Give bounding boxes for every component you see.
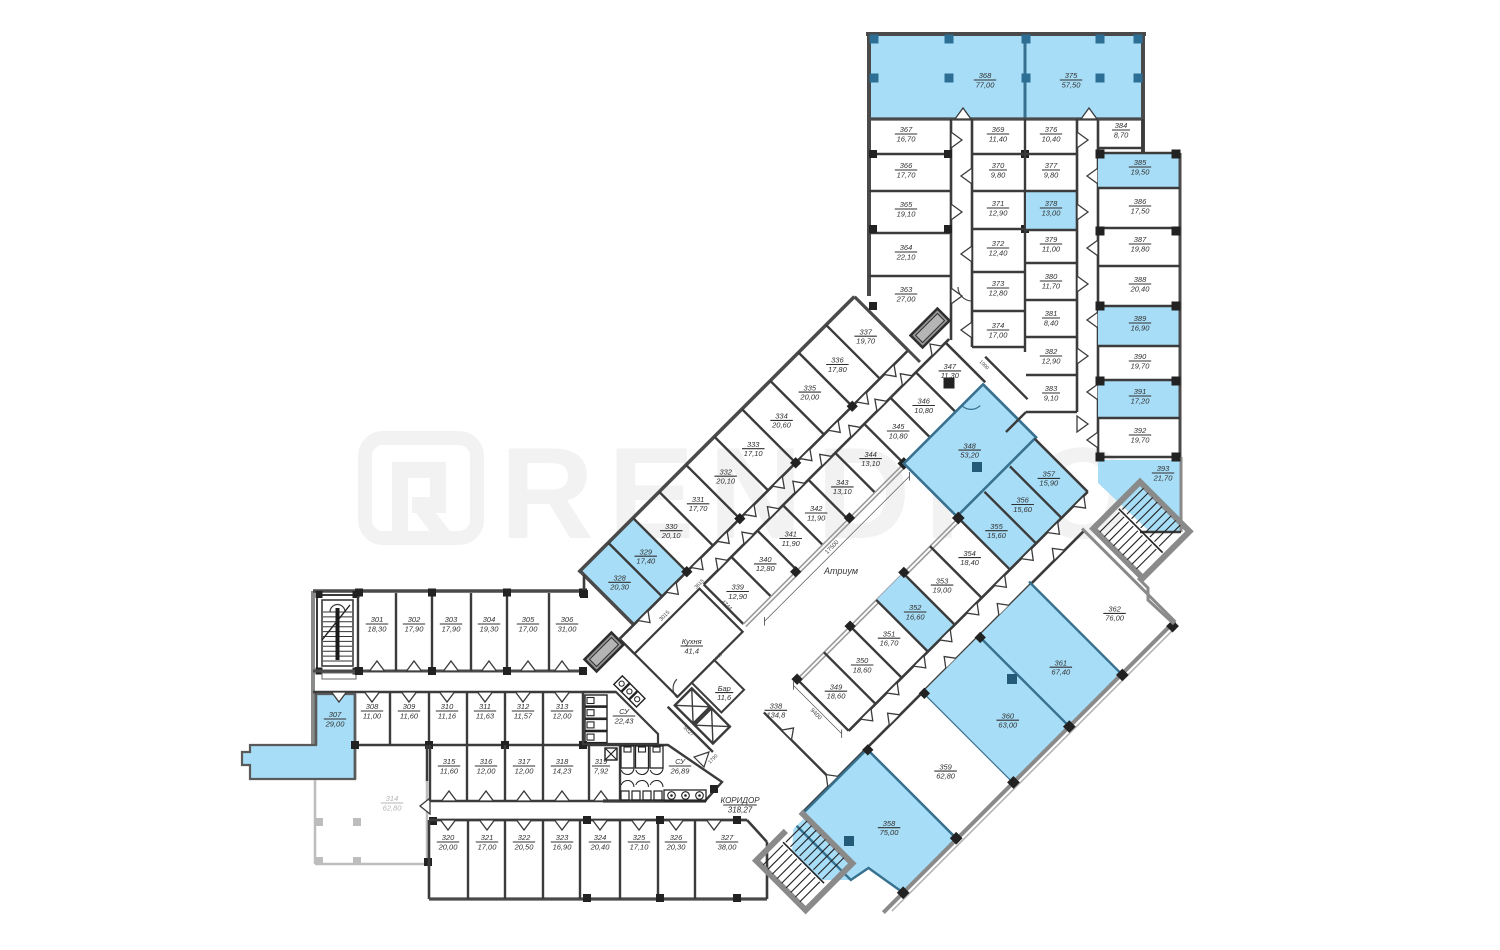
svg-text:327: 327 [721,833,734,842]
svg-text:17,00: 17,00 [519,624,539,633]
svg-text:12,80: 12,80 [989,288,1009,297]
svg-text:11,16: 11,16 [438,711,457,720]
svg-text:340: 340 [759,555,772,564]
svg-text:16,70: 16,70 [897,134,917,143]
svg-text:62,80: 62,80 [383,803,403,812]
svg-text:360: 360 [1002,711,1015,720]
svg-text:11,00: 11,00 [1042,244,1061,253]
svg-text:16,90: 16,90 [1131,323,1151,332]
svg-text:369: 369 [992,125,1005,134]
svg-text:342: 342 [810,504,823,513]
svg-text:330: 330 [665,522,678,531]
svg-text:Атриум: Атриум [823,566,858,576]
svg-text:343: 343 [836,478,849,487]
svg-text:19,30: 19,30 [480,624,500,633]
svg-text:17,90: 17,90 [442,624,462,633]
svg-text:15,60: 15,60 [987,531,1007,540]
svg-text:335: 335 [804,383,817,392]
svg-text:10,40: 10,40 [1042,134,1062,143]
svg-text:17,10: 17,10 [744,449,764,458]
svg-text:26,89: 26,89 [670,766,691,775]
svg-text:9,10: 9,10 [1044,393,1059,402]
svg-text:62,80: 62,80 [936,771,956,780]
svg-text:392: 392 [1134,426,1147,435]
svg-text:20,10: 20,10 [715,477,736,486]
svg-text:339: 339 [731,583,744,592]
svg-text:303: 303 [445,615,458,624]
svg-text:304: 304 [483,615,496,624]
svg-text:365: 365 [900,200,913,209]
svg-text:382: 382 [1045,347,1058,356]
svg-text:19,00: 19,00 [933,585,953,594]
svg-text:328: 328 [613,574,626,583]
svg-text:14,23: 14,23 [553,766,573,775]
svg-text:388: 388 [1134,275,1147,284]
svg-text:17,70: 17,70 [897,170,917,179]
svg-text:376: 376 [1045,125,1058,134]
svg-text:18,60: 18,60 [827,692,847,701]
svg-text:17,10: 17,10 [630,842,650,851]
svg-text:18,40: 18,40 [960,558,980,567]
svg-text:17,00: 17,00 [478,842,498,851]
svg-text:380: 380 [1045,272,1058,281]
svg-text:7,92: 7,92 [594,766,609,775]
svg-text:12,40: 12,40 [989,248,1009,257]
svg-text:384: 384 [1115,121,1128,130]
svg-text:311: 311 [479,702,491,711]
svg-text:386: 386 [1134,197,1147,206]
svg-text:361: 361 [1055,658,1068,667]
svg-text:Бар: Бар [718,684,731,693]
svg-text:21,70: 21,70 [1153,473,1174,482]
svg-text:10,80: 10,80 [914,406,934,415]
svg-text:75,00: 75,00 [880,828,900,837]
svg-text:17,80: 17,80 [828,365,848,374]
svg-text:325: 325 [633,833,646,842]
svg-text:63,00: 63,00 [998,721,1018,730]
svg-text:336: 336 [831,356,844,365]
svg-text:16,70: 16,70 [880,639,900,648]
svg-text:12,00: 12,00 [515,766,535,775]
svg-text:13,10: 13,10 [833,487,853,496]
svg-text:СУ: СУ [619,707,630,716]
svg-text:318: 318 [556,757,569,766]
svg-text:11,40: 11,40 [989,134,1008,143]
svg-text:31,00: 31,00 [558,624,578,633]
svg-text:350: 350 [856,656,869,665]
svg-text:381: 381 [1045,309,1058,318]
svg-text:316: 316 [480,757,493,766]
svg-text:20,30: 20,30 [666,842,687,851]
svg-text:11,6: 11,6 [717,693,732,702]
svg-text:41,4: 41,4 [684,646,699,655]
svg-text:12,80: 12,80 [756,564,776,573]
svg-text:357: 357 [1043,470,1056,479]
svg-text:317: 317 [518,757,531,766]
svg-text:20,10: 20,10 [661,531,682,540]
svg-text:20,30: 20,30 [609,583,630,592]
svg-text:364: 364 [900,243,913,252]
svg-text:373: 373 [992,279,1005,288]
svg-text:16,90: 16,90 [553,842,573,851]
svg-text:77,00: 77,00 [976,80,996,89]
svg-text:307: 307 [329,710,342,719]
svg-text:15,90: 15,90 [1039,479,1059,488]
svg-text:390: 390 [1134,352,1147,361]
svg-text:375: 375 [1065,71,1078,80]
svg-text:393: 393 [1157,464,1170,473]
svg-text:8,70: 8,70 [1114,130,1129,139]
svg-text:377: 377 [1045,161,1058,170]
svg-text:313: 313 [556,702,569,711]
svg-text:349: 349 [830,682,843,691]
svg-text:17,00: 17,00 [989,330,1009,339]
svg-text:10,80: 10,80 [889,431,909,440]
svg-text:Кухня: Кухня [682,637,702,646]
svg-text:3015: 3015 [658,610,671,623]
svg-text:11,60: 11,60 [400,711,419,720]
svg-text:363: 363 [900,285,913,294]
svg-text:18,30: 18,30 [368,624,388,633]
svg-text:38,00: 38,00 [718,842,738,851]
svg-text:385: 385 [1134,158,1147,167]
svg-text:308: 308 [366,702,379,711]
svg-text:389: 389 [1134,314,1147,323]
svg-text:19,70: 19,70 [1131,435,1151,444]
svg-text:22,10: 22,10 [896,252,917,261]
svg-text:362: 362 [1108,605,1121,614]
svg-text:378: 378 [1045,199,1058,208]
svg-text:329: 329 [640,547,653,556]
svg-text:11,63: 11,63 [476,711,495,720]
svg-text:СУ: СУ [675,757,686,766]
svg-text:19,70: 19,70 [856,337,876,346]
svg-text:67,40: 67,40 [1051,668,1071,677]
svg-text:320: 320 [442,833,455,842]
svg-text:374: 374 [992,321,1005,330]
svg-text:12,00: 12,00 [477,766,497,775]
svg-text:12,00: 12,00 [553,711,573,720]
svg-text:345: 345 [892,422,905,431]
svg-text:306: 306 [561,615,574,624]
svg-text:332: 332 [719,467,732,476]
svg-text:11,57: 11,57 [514,711,533,720]
svg-text:5027: 5027 [682,725,695,738]
svg-text:337: 337 [859,327,872,336]
svg-text:321: 321 [481,833,494,842]
svg-text:53,20: 53,20 [960,450,980,459]
svg-text:383: 383 [1045,384,1058,393]
svg-text:12,90: 12,90 [989,208,1009,217]
svg-text:334: 334 [775,412,788,421]
svg-text:12,90: 12,90 [728,592,748,601]
svg-text:9,80: 9,80 [991,170,1006,179]
svg-text:372: 372 [992,239,1005,248]
svg-text:309: 309 [403,702,416,711]
svg-text:323: 323 [556,833,569,842]
svg-text:351: 351 [883,629,896,638]
svg-text:326: 326 [670,833,683,842]
svg-text:17,40: 17,40 [636,557,656,566]
svg-text:57,50: 57,50 [1062,80,1082,89]
svg-text:29,00: 29,00 [325,719,346,728]
svg-text:315: 315 [443,757,456,766]
svg-text:76,00: 76,00 [1105,614,1125,623]
svg-text:338: 338 [770,702,783,711]
svg-text:20,00: 20,00 [438,842,459,851]
svg-text:344: 344 [864,450,877,459]
svg-text:11,90: 11,90 [782,539,801,548]
svg-text:310: 310 [441,702,454,711]
svg-text:387: 387 [1134,235,1147,244]
svg-text:366: 366 [900,161,913,170]
svg-text:346: 346 [917,397,930,406]
svg-text:359: 359 [939,762,952,771]
svg-text:19,70: 19,70 [1131,361,1151,370]
svg-text:367: 367 [900,125,913,134]
svg-text:371: 371 [992,199,1005,208]
svg-text:314: 314 [386,794,399,803]
svg-text:17,70: 17,70 [689,504,709,513]
svg-text:13,10: 13,10 [861,459,881,468]
svg-text:11,70: 11,70 [1042,281,1061,290]
svg-text:352: 352 [909,603,922,612]
svg-text:324: 324 [594,833,607,842]
svg-text:27,00: 27,00 [896,294,917,303]
svg-text:347: 347 [944,362,957,371]
svg-text:9400: 9400 [809,708,823,722]
svg-text:18,60: 18,60 [853,665,873,674]
svg-text:353: 353 [936,576,949,585]
svg-text:19,10: 19,10 [897,209,917,218]
svg-text:370: 370 [992,161,1005,170]
svg-text:302: 302 [408,615,421,624]
svg-text:341: 341 [784,530,797,539]
svg-text:318,27: 318,27 [728,805,753,814]
svg-text:379: 379 [1045,235,1058,244]
svg-text:301: 301 [371,615,384,624]
svg-text:348: 348 [963,441,976,450]
svg-text:19,50: 19,50 [1131,167,1151,176]
svg-text:12,90: 12,90 [1042,356,1062,365]
svg-text:20,40: 20,40 [1130,284,1151,293]
svg-text:322: 322 [518,833,531,842]
svg-text:19,80: 19,80 [1131,244,1151,253]
svg-text:20,60: 20,60 [771,421,792,430]
svg-text:22,43: 22,43 [614,716,635,725]
svg-text:358: 358 [883,819,896,828]
svg-text:356: 356 [1016,496,1029,505]
svg-text:20,00: 20,00 [799,392,820,401]
svg-text:17,50: 17,50 [1131,206,1151,215]
svg-text:15,60: 15,60 [1013,505,1033,514]
svg-text:8,40: 8,40 [1044,318,1059,327]
svg-text:1790: 1790 [707,753,719,765]
svg-text:20,50: 20,50 [514,842,535,851]
svg-text:368: 368 [979,71,992,80]
svg-text:13,00: 13,00 [1042,208,1062,217]
svg-text:16,60: 16,60 [906,612,926,621]
svg-text:20,40: 20,40 [590,842,611,851]
svg-text:355: 355 [990,522,1003,531]
svg-text:312: 312 [517,702,530,711]
svg-text:КОРИДОР: КОРИДОР [720,796,760,805]
svg-text:11,90: 11,90 [807,513,826,522]
svg-text:11,60: 11,60 [440,766,459,775]
svg-text:17,20: 17,20 [1131,396,1151,405]
svg-text:354: 354 [963,549,976,558]
svg-text:11,00: 11,00 [363,711,382,720]
svg-text:391: 391 [1134,387,1147,396]
svg-text:17,90: 17,90 [405,624,425,633]
svg-text:134,8: 134,8 [767,711,787,720]
svg-text:9,80: 9,80 [1044,170,1059,179]
svg-text:305: 305 [522,615,535,624]
svg-text:331: 331 [692,495,705,504]
svg-text:333: 333 [747,440,760,449]
